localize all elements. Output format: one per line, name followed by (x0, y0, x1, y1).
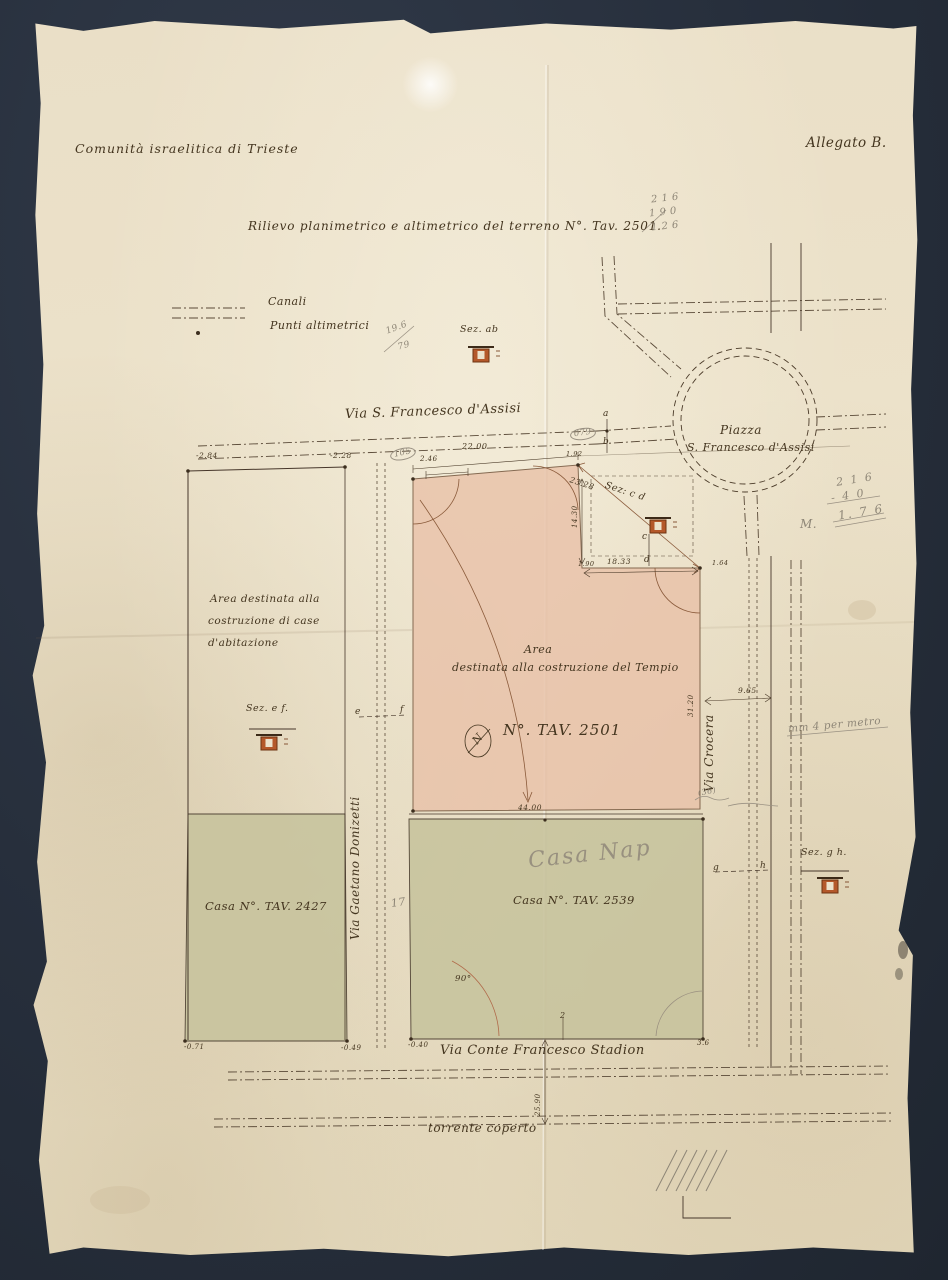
section-gh-label: Sez. g h. (801, 848, 847, 858)
legend-punti-label: Punti altimetrici (270, 320, 369, 332)
via-crocera-label: Via Crocera (703, 714, 716, 792)
case-area-label-1: Area destinata alla (210, 594, 320, 606)
section-symbol-gh (801, 871, 849, 893)
photo-backdrop: { "document": { "organization": "Comunit… (0, 0, 948, 1280)
piazza-circle (673, 348, 817, 492)
pencil-17: 17 (390, 896, 407, 910)
mark-b: b (603, 438, 609, 448)
measurement-bottom-width: 44.00 (518, 804, 542, 812)
casa-2427-label: Casa N°. TAV. 2427 (205, 900, 327, 913)
point-neg228: -2.28 (330, 452, 352, 460)
torrente-coperto-label: torrente coperto (428, 1122, 537, 1135)
section-symbol-ef (249, 729, 296, 750)
measurement-top-width: 22.00 (462, 443, 487, 452)
point-36: 3.6 (697, 1040, 710, 1048)
street-solid-edges (771, 243, 801, 1068)
section-ab-label: Sez. ab (460, 325, 498, 335)
mark-e: e (355, 708, 361, 718)
point-neg071: -0.71 (184, 1044, 204, 1052)
measurement-164: 1.64 (712, 560, 728, 567)
plan-drawing (0, 0, 948, 1280)
piazza-label-line1: Piazza (720, 424, 762, 437)
mark-d: d (644, 556, 650, 566)
case-area-label-2: costruzione di case (208, 616, 320, 628)
legend-point-sample (196, 331, 200, 335)
temple-area-label-2: destinata alla costruzione del Tempio (452, 662, 679, 674)
hatch-sketch (656, 1150, 731, 1218)
point-2: 2 (560, 1012, 566, 1021)
measurement-angle: 90° (455, 975, 472, 984)
mark-g: g (713, 864, 719, 874)
area-polygons (185, 465, 703, 1041)
section-symbol-ab (468, 347, 500, 362)
point-neg049: -0.49 (341, 1045, 361, 1053)
case-area-label-3: d'abitazione (208, 638, 279, 650)
section-symbol-cd (645, 518, 677, 533)
section-ef-label: Sez. e f. (246, 704, 289, 714)
piazza-label-line2: S. Francesco d'Assisi (687, 442, 815, 454)
casa-2539-label: Casa N°. TAV. 2539 (513, 894, 635, 907)
temple-area-label-1: Area (524, 644, 552, 656)
point-neg040: -0.40 (408, 1042, 428, 1050)
mark-c: c (642, 533, 648, 543)
point-neg284: -2.84 (196, 452, 218, 460)
mark-a: a (603, 410, 609, 420)
measurement-190: 1.90 (578, 561, 594, 568)
organization-title: Comunità israelitica di Trieste (75, 142, 299, 156)
measurement-192: 1.92 (566, 451, 582, 458)
measurement-notch-bottom: 18.33 (607, 558, 631, 566)
legend-canal-sample (172, 308, 245, 318)
mark-f: f (400, 706, 404, 716)
drawing-title: Rilievo planimetrico e altimetrico del t… (248, 220, 662, 233)
temple-area-polygon (413, 465, 700, 811)
mark-h: h (760, 862, 766, 872)
measurement-notch-height: 14.30 (572, 505, 580, 528)
measurement-right-height: 31.20 (688, 694, 696, 717)
measurement-crocera-width: 9.65 (738, 687, 757, 695)
legend-canali-label: Canali (268, 296, 307, 308)
attachment-label: Allegato B. (806, 136, 887, 151)
pencil-calc2-prefix: M. (800, 518, 817, 531)
via-donizetti-label: Via Gaetano Donizetti (349, 796, 362, 940)
casa-2427-polygon (185, 814, 347, 1041)
temple-parcel-number: N°. TAV. 2501 (503, 722, 621, 739)
measurement-246: 2.46 (420, 456, 438, 464)
via-stadion-label: Via Conte Francesco Stadion (440, 1044, 645, 1058)
measurement-torrente-dist: 25.90 (535, 1093, 543, 1116)
